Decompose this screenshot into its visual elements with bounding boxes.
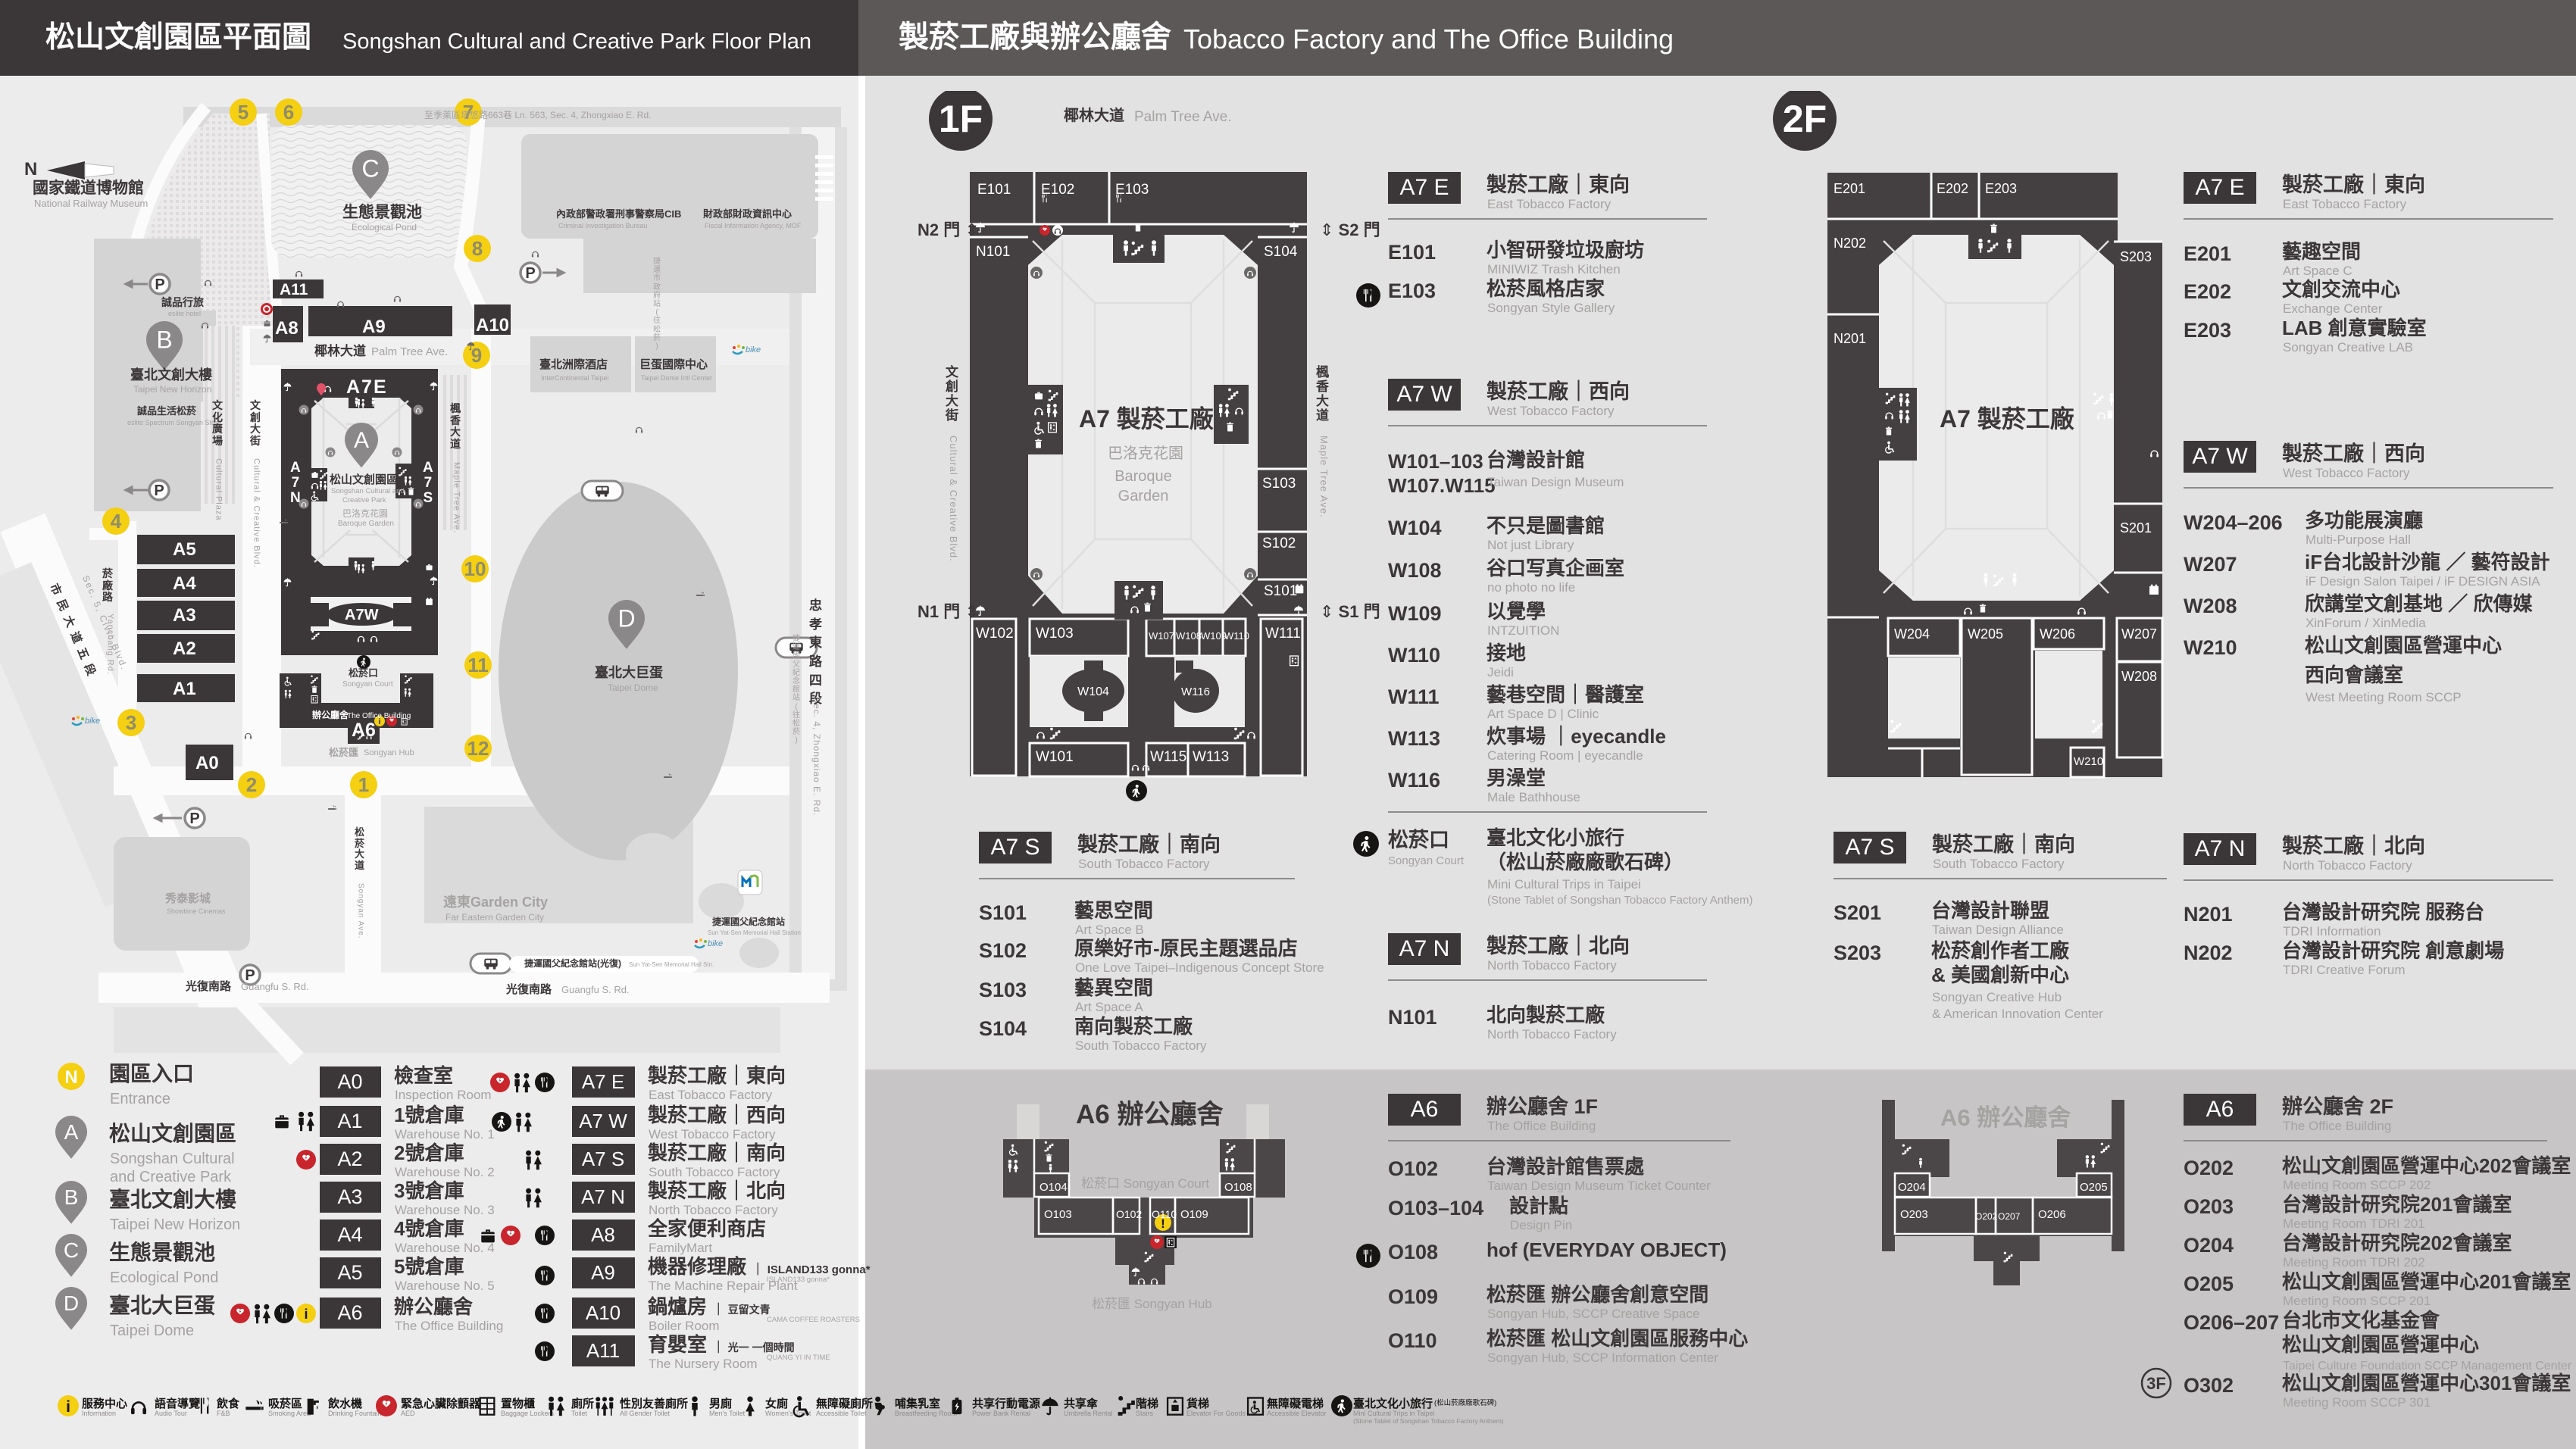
svg-text:無障礙電梯: 無障礙電梯 (1267, 1397, 1324, 1410)
svg-text:N201: N201 (1834, 331, 1866, 346)
svg-text:Accessible Elevator: Accessible Elevator (1267, 1410, 1327, 1417)
svg-text:W204: W204 (1894, 626, 1930, 642)
svg-text:共享傘: 共享傘 (1064, 1397, 1099, 1410)
svg-text:臺北文化小旅行: 臺北文化小旅行 (1353, 1397, 1433, 1410)
svg-text:Women's Toilet: Women's Toilet (765, 1410, 811, 1417)
svg-text:O207: O207 (1998, 1211, 2021, 1222)
svg-text:O108: O108 (1224, 1181, 1252, 1194)
svg-text:A: A (64, 1120, 79, 1144)
svg-text:S203: S203 (2120, 249, 2152, 264)
svg-text:置物櫃: 置物櫃 (501, 1397, 535, 1410)
svg-text:2F: 2F (1783, 98, 1827, 140)
svg-text:3F: 3F (2146, 1374, 2166, 1393)
svg-text:貨梯: 貨梯 (1186, 1397, 1209, 1410)
svg-text:O205: O205 (2080, 1181, 2108, 1194)
svg-text:S101: S101 (1264, 583, 1297, 599)
svg-text:男廁: 男廁 (709, 1397, 732, 1410)
svg-text:廁所: 廁所 (571, 1397, 594, 1410)
svg-text:O202: O202 (1975, 1211, 1998, 1222)
svg-text:W104: W104 (1077, 685, 1109, 698)
svg-text:A9: A9 (591, 1261, 615, 1284)
svg-text:O104: O104 (1039, 1181, 1068, 1194)
svg-text:Accessible Toilet: Accessible Toilet (816, 1410, 867, 1417)
svg-text:A3: A3 (337, 1185, 362, 1208)
svg-text:Toilet: Toilet (571, 1410, 588, 1417)
svg-text:服務中心: 服務中心 (82, 1397, 127, 1410)
svg-text:(Stone Tablet of Songshan Toba: (Stone Tablet of Songshan Tobacco Factor… (1353, 1417, 1504, 1425)
svg-text:W107: W107 (1149, 630, 1174, 642)
svg-text:飲水機: 飲水機 (327, 1397, 362, 1410)
svg-text:A7 N: A7 N (581, 1185, 625, 1208)
svg-text:E101: E101 (977, 182, 1011, 198)
svg-text:A10: A10 (586, 1301, 621, 1324)
svg-text:W103: W103 (1036, 626, 1074, 642)
svg-text:D: D (64, 1291, 79, 1315)
svg-text:E103: E103 (1115, 182, 1149, 198)
svg-text:N101: N101 (976, 244, 1010, 260)
svg-text:E203: E203 (1985, 181, 2017, 196)
svg-text:Audio Tour: Audio Tour (155, 1410, 187, 1417)
svg-text:N: N (64, 1067, 77, 1088)
svg-text:W102: W102 (976, 626, 1014, 642)
svg-text:Smoking Area: Smoking Area (268, 1410, 311, 1417)
svg-text:S102: S102 (1262, 536, 1296, 551)
svg-text:Stairs: Stairs (1136, 1410, 1154, 1417)
svg-text:O110: O110 (1152, 1208, 1177, 1220)
svg-text:A7 E: A7 E (582, 1070, 624, 1093)
svg-text:i: i (66, 1398, 70, 1416)
svg-text:A7 S: A7 S (582, 1148, 624, 1170)
svg-text:W109: W109 (1201, 630, 1227, 642)
svg-text:N202: N202 (1834, 236, 1866, 251)
svg-text:性別友善廁所: 性別友善廁所 (620, 1397, 688, 1410)
svg-text:W108: W108 (1176, 630, 1202, 642)
svg-text:All Gender Toilet: All Gender Toilet (620, 1410, 670, 1417)
svg-text:W206: W206 (2040, 626, 2075, 642)
svg-text:A7 W: A7 W (579, 1110, 627, 1132)
svg-text:W113: W113 (1193, 749, 1229, 765)
svg-text:Information: Information (82, 1410, 116, 1417)
svg-text:女廁: 女廁 (765, 1397, 788, 1410)
svg-text:Drinking Fountain: Drinking Fountain (328, 1410, 382, 1417)
svg-text:O103: O103 (1044, 1208, 1072, 1221)
svg-text:共享行動電源: 共享行動電源 (972, 1397, 1040, 1410)
svg-text:S104: S104 (1264, 244, 1298, 260)
svg-text:O206: O206 (2038, 1208, 2066, 1221)
svg-text:O102: O102 (1116, 1208, 1142, 1220)
svg-text:F&B: F&B (217, 1410, 230, 1417)
svg-text:S201: S201 (2120, 520, 2152, 536)
svg-text:緊急心臟除顫器: 緊急心臟除顫器 (401, 1397, 481, 1410)
svg-text:E202: E202 (1937, 181, 1968, 196)
svg-text:W205: W205 (1968, 626, 2003, 642)
svg-text:1F: 1F (939, 98, 983, 140)
svg-text:A0: A0 (337, 1070, 362, 1093)
svg-text:A8: A8 (591, 1223, 615, 1246)
svg-text:E201: E201 (1834, 181, 1865, 196)
svg-text:W207: W207 (2121, 626, 2157, 642)
svg-text:飲食: 飲食 (216, 1397, 240, 1410)
svg-text:B: B (64, 1185, 79, 1209)
svg-text:Power Bank Rental: Power Bank Rental (972, 1410, 1030, 1417)
svg-text:W116: W116 (1181, 685, 1210, 698)
svg-text:Breastfeeding Room: Breastfeeding Room (895, 1410, 957, 1417)
svg-text:A11: A11 (586, 1339, 620, 1362)
svg-text:A2: A2 (337, 1148, 362, 1170)
svg-text:A6: A6 (337, 1301, 362, 1324)
svg-text:W110: W110 (1224, 630, 1249, 642)
svg-text:AED: AED (401, 1410, 415, 1417)
svg-text:E102: E102 (1041, 182, 1074, 198)
svg-text:A1: A1 (337, 1110, 362, 1132)
svg-text:O203: O203 (1900, 1208, 1928, 1221)
svg-text:C: C (64, 1238, 79, 1262)
svg-text:O204: O204 (1898, 1181, 1926, 1194)
svg-text:W101: W101 (1036, 749, 1074, 765)
svg-text:Elevator For Goods: Elevator For Goods (1186, 1410, 1246, 1417)
svg-text:W210: W210 (2074, 755, 2103, 768)
svg-text:i: i (304, 1307, 308, 1322)
svg-text:Baggage Lockers: Baggage Lockers (501, 1410, 555, 1417)
svg-text:語音導覽: 語音導覽 (155, 1397, 200, 1410)
svg-text:吸菸區: 吸菸區 (268, 1397, 302, 1410)
svg-text:哺集乳室: 哺集乳室 (895, 1397, 940, 1410)
svg-text:Men's Toilet: Men's Toilet (709, 1410, 746, 1417)
svg-text:Mini Cultural Trips in Taipei: Mini Cultural Trips in Taipei (1353, 1410, 1434, 1417)
svg-text:Umbrella Rental: Umbrella Rental (1064, 1410, 1113, 1417)
svg-text:無障礙廁所: 無障礙廁所 (816, 1397, 873, 1410)
svg-text:W208: W208 (2121, 669, 2157, 684)
svg-text:O109: O109 (1180, 1208, 1208, 1221)
svg-text:(松山菸廠廠歌石碑): (松山菸廠廠歌石碑) (1434, 1398, 1496, 1407)
svg-text:W111: W111 (1265, 626, 1301, 642)
svg-text:W115: W115 (1150, 749, 1186, 765)
svg-text:S103: S103 (1262, 476, 1296, 492)
svg-text:階梯: 階梯 (1136, 1397, 1158, 1410)
svg-text:A4: A4 (337, 1223, 362, 1246)
svg-text:A5: A5 (337, 1261, 362, 1284)
